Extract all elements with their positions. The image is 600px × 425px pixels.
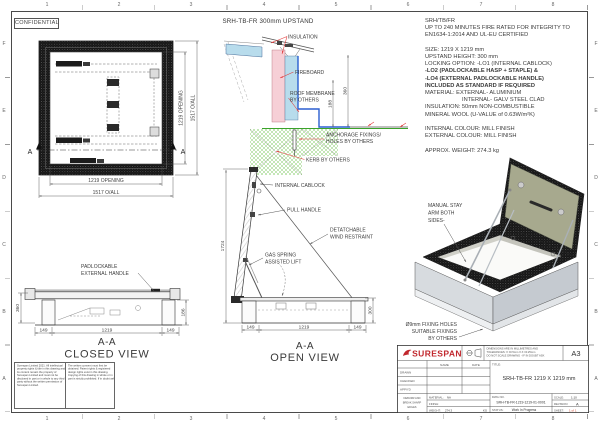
label-padlockable-2: EXTERNAL HANDLE: [81, 271, 130, 277]
section-title: SRH-TB-FR 300mm UPSTAND: [222, 18, 313, 25]
spec-line: LOCKING OPTION: -LO1 (INTERNAL CABLOCK): [425, 61, 589, 68]
scale-value: 1:10: [571, 396, 577, 400]
label-membrane-1: ROOF MEMBRANE: [290, 91, 335, 97]
title-block: SURESPAN DIMENSIONS ARE IN MILLIMETRES A…: [397, 345, 589, 413]
grid-col-label: 8: [548, 2, 558, 8]
row-label-checked: CHECKED: [400, 379, 416, 383]
grid-row-label: A: [0, 376, 9, 382]
row-label-drawn: DRAWN: [400, 371, 411, 375]
spec-line: EN1634-1:2014 AND UL-EU CERTIFIED: [425, 32, 589, 39]
dim-149-left: 149: [246, 325, 254, 331]
grid-row-label: E: [591, 108, 600, 114]
grid-col-label: 3: [186, 416, 196, 422]
note-line-1: DIMENSIONS ARE IN MILLIMETRES AND: [487, 347, 539, 351]
spec-line: UPSTAND HEIGHT: 300 mm: [425, 54, 589, 61]
spec-line: UP TO 240 MINUTES FIRE RATED FOR INTEGRI…: [425, 25, 589, 32]
grid-col-label: 2: [114, 416, 124, 422]
spec-line: INCLUDED AS STANDARD IF REQUIRED: [425, 83, 589, 90]
label-anchorage-2: HOLES BY OTHERS: [326, 139, 374, 145]
note-line-2: TOLERANCES: X ±0.5mm X.X ±0.25mm: [487, 350, 537, 354]
grid-col-label: 8: [548, 416, 558, 422]
grid-col-label: 7: [476, 416, 486, 422]
drawing-sheet: 1 2 3 4 5 6 7 8 1 2 3 4 5 6 7 8 F E D C …: [0, 0, 600, 425]
spec-line: [425, 40, 589, 47]
spec-block: SRH/TB/FR UP TO 240 MINUTES FIRE RATED F…: [425, 18, 589, 155]
label-anchorage-1: ANCHORAGE FIXINGS/: [326, 133, 382, 139]
label-gas-spring-2: ASSISTED LIFT: [265, 260, 301, 266]
closed-view: 360 186 149 1219 149 PADLOCKABLE EXTERNA…: [10, 252, 222, 365]
open-view-title: OPEN VIEW: [270, 352, 340, 364]
spec-line: -LO4 (EXTERNAL PADLOCKABLE HANDLE): [425, 76, 589, 83]
grid-col-label: 6: [403, 416, 413, 422]
open-view: 1724 300 149 1219 149 INTERNAL CABLOCK P…: [218, 158, 398, 370]
grid-col-label: 1: [42, 2, 52, 8]
grid-col-label: 7: [476, 2, 486, 8]
sheet-size: A3: [571, 349, 580, 358]
copyright-text-2: The written consent must first be obtain…: [66, 363, 115, 382]
drawing-title: SRH-TB-FR 1219 X 1219 mm: [502, 376, 575, 382]
spec-line: MINERAL WOOL (U-VALUE of 0.63W/m²K): [425, 112, 589, 119]
grid-row-label: E: [0, 108, 9, 114]
label-internal-cablock: INTERNAL CABLOCK: [275, 183, 325, 189]
section-geometry: [224, 37, 408, 175]
spec-line: MATERIAL: EXTERNAL- ALUMINIUM: [425, 90, 589, 97]
revision-value: A: [576, 401, 579, 406]
deburr-line-2: BREAK SHARP: [403, 401, 422, 405]
brand-logo-text: SURESPAN: [412, 349, 462, 359]
weight-value: 274.3: [445, 408, 452, 412]
dim-overall-vertical: 1517 O/ALL: [191, 94, 197, 121]
note-line-3: DO NOT SCALE DRAWING - IF IN DOUBT ASK: [487, 354, 545, 358]
grid-row-label: A: [591, 376, 600, 382]
grid-col-label: 5: [331, 2, 341, 8]
dim-149-left: 149: [39, 328, 47, 334]
label-manual-stay-1: MANUAL STAY: [428, 203, 463, 209]
dim-opening-bottom: 1219 OPENING: [88, 178, 124, 184]
grid-col-label: 3: [186, 2, 196, 8]
grid-row-label: C: [591, 242, 600, 248]
grid-row-label: C: [0, 242, 9, 248]
grid-row-label: F: [0, 41, 9, 47]
spec-line: INTERNAL COLOUR: MILL FINISH: [425, 126, 589, 133]
spec-line: SIZE: 1219 X 1219 mm: [425, 47, 589, 54]
grid-col-label: 5: [331, 416, 341, 422]
status-label: STATUS:: [492, 408, 504, 412]
label-fireboard: FIREBOARD: [295, 70, 325, 76]
dwg-label: DWG NO.: [492, 395, 505, 399]
label-fixing-holes-1: Ø9mm FIXING HOLES: [406, 322, 458, 328]
dim-opening-vertical: 1219 OPENING: [179, 90, 185, 126]
dwg-number: SRH-TB-FR-1219-1219-01-0001: [496, 401, 545, 405]
title-label: TITLE:: [492, 363, 501, 367]
col-header-date: DATE: [472, 363, 480, 367]
deburr-line-1: DEBURR AND: [403, 396, 420, 400]
grid-col-label: 4: [259, 416, 269, 422]
plan-view: A A 1219 OPENING 1517 O/ALL 1219 OPENING…: [25, 33, 205, 205]
grid-row-label: B: [0, 309, 9, 315]
label-wind-restraint-1: DETATCHABLE: [330, 228, 366, 234]
label-manual-stay-2: ARM BOTH: [428, 211, 455, 217]
dim-186-closed: 186: [181, 308, 187, 316]
copyright-col-1: Surespan Limited 2021. All intellectual …: [15, 363, 65, 408]
dim-188: 188: [328, 100, 334, 108]
closed-geometry: [25, 289, 182, 326]
spec-line: INTERNAL- GALV STEEL CLAD: [425, 97, 589, 104]
spec-line: INSULATION: 50mm NON-COMBUSTIBLE: [425, 104, 589, 111]
deburr-line-3: EDGES: [407, 405, 416, 409]
grid-col-label: 2: [114, 2, 124, 8]
open-view-section-title: A-A: [296, 341, 314, 352]
grid-col-label: 1: [42, 416, 52, 422]
dim-1219: 1219: [102, 328, 113, 334]
section-marker-a-left: A: [28, 149, 33, 156]
weight-label: WEIGHT:: [429, 408, 441, 412]
col-header-name: NAME: [440, 363, 449, 367]
spec-line: SRH/TB/FR: [425, 18, 589, 25]
open-labels: INTERNAL CABLOCK PULL HANDLE DETATCHABLE…: [265, 183, 373, 266]
dim-360: 360: [343, 87, 349, 95]
copyright-col-2: The written consent must first be obtain…: [65, 363, 115, 408]
dim-1724: 1724: [220, 240, 226, 251]
spec-line: [425, 140, 589, 147]
grid-row-label: B: [591, 309, 600, 315]
dim-360-closed: 360: [15, 304, 21, 312]
handle-leader-line: [138, 273, 154, 291]
label-gas-spring-1: GAS SPRING: [265, 253, 296, 259]
row-label-appvd: APPV'D: [400, 388, 412, 392]
sheet-value: 1 of 1: [569, 408, 577, 412]
dim-300: 300: [368, 306, 374, 314]
fixing-holes-leader: [459, 329, 483, 337]
label-insulation: INSULATION: [288, 35, 318, 41]
grid-ticks-top: [11, 5, 588, 10]
material-value: NA: [447, 396, 451, 400]
closed-view-section-title: A-A: [98, 337, 116, 348]
label-wind-restraint-2: WIND RESTRAINT: [330, 235, 373, 241]
isometric-view: MANUAL STAY ARM BOTH SIDES- Ø9mm FIXING …: [393, 150, 591, 352]
label-fixing-holes-2: SUITABLE FIXINGS: [412, 329, 458, 335]
grid-row-label: F: [591, 41, 600, 47]
grid-row-label: D: [591, 175, 600, 181]
open-geometry: [231, 167, 368, 323]
label-fixing-holes-3: BY OTHERS: [428, 336, 457, 342]
dim-149-right: 149: [353, 325, 361, 331]
label-manual-stay-3: SIDES-: [428, 218, 445, 224]
revision-label: REVISION:: [554, 402, 568, 406]
confidential-stamp: CONFIDENTIAL: [14, 18, 59, 29]
spec-line: EXTERNAL COLOUR: MILL FINISH: [425, 133, 589, 140]
finish-label: FINISH:: [429, 402, 439, 406]
closed-view-title: CLOSED VIEW: [64, 349, 149, 361]
spec-line: [425, 119, 589, 126]
dim-149-right: 149: [166, 328, 174, 334]
grid-ticks-bottom: [11, 414, 588, 419]
label-membrane-2: BY OTHERS: [290, 98, 319, 104]
copyright-block: Surespan Limited 2021. All intellectual …: [14, 362, 115, 409]
dim-1219: 1219: [299, 325, 310, 331]
label-padlockable-1: PADLOCKABLE: [81, 264, 118, 270]
status-value: Work In Progress: [512, 408, 537, 412]
weight-unit: KG: [483, 408, 487, 412]
copyright-text-1: Surespan Limited 2021. All intellectual …: [15, 363, 65, 389]
dim-overall-bottom: 1517 O/ALL: [93, 190, 120, 196]
grid-col-label: 4: [259, 2, 269, 8]
material-label: MATERIAL:: [429, 396, 444, 400]
scale-label: SCALE:: [554, 396, 564, 400]
sheet-label: SHEET:: [554, 408, 564, 412]
label-pull-handle: PULL HANDLE: [287, 208, 322, 214]
grid-col-label: 6: [403, 2, 413, 8]
spec-line: -LO2 (PADLOCKABLE HASP + STAPLE) &: [425, 68, 589, 75]
grid-row-label: D: [0, 175, 9, 181]
